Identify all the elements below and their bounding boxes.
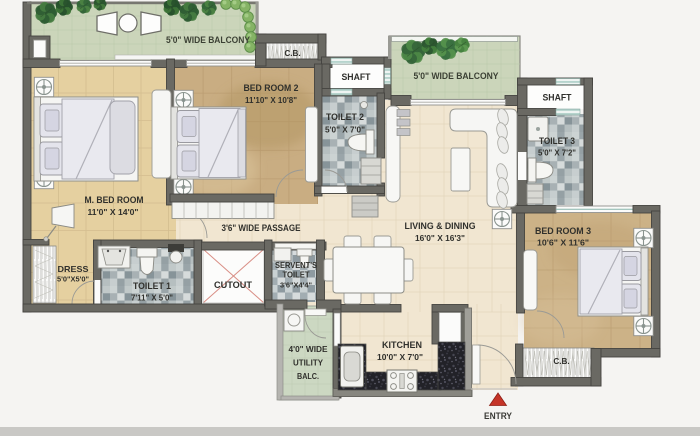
svg-text:CUTOUT: CUTOUT	[214, 280, 252, 290]
svg-text:C.B.: C.B.	[284, 49, 300, 58]
svg-text:BED ROOM 3: BED ROOM 3	[535, 225, 591, 236]
svg-text:TOILET 3: TOILET 3	[539, 136, 575, 146]
svg-text:16'0" X 16'3": 16'0" X 16'3"	[415, 233, 465, 243]
svg-text:7'11" X 5'0": 7'11" X 5'0"	[131, 294, 173, 303]
svg-text:SHAFT: SHAFT	[342, 72, 371, 83]
svg-text:5'0" WIDE BALCONY: 5'0" WIDE BALCONY	[414, 71, 500, 82]
svg-text:LIVING & DINING: LIVING & DINING	[405, 220, 476, 231]
svg-text:BALC.: BALC.	[297, 372, 319, 381]
svg-text:SERVENT'S: SERVENT'S	[275, 261, 317, 270]
svg-text:5'0" X 7'2": 5'0" X 7'2"	[538, 149, 576, 158]
svg-text:DRESS: DRESS	[58, 264, 89, 274]
svg-text:BED ROOM 2: BED ROOM 2	[244, 82, 299, 93]
svg-text:3'6"X4'4": 3'6"X4'4"	[280, 281, 312, 290]
svg-text:5'0" WIDE BALCONY: 5'0" WIDE BALCONY	[166, 35, 251, 46]
svg-text:M. BED ROOM: M. BED ROOM	[85, 194, 144, 205]
svg-text:10'0" X 7'0": 10'0" X 7'0"	[377, 352, 423, 362]
svg-text:10'6" X 11'6": 10'6" X 11'6"	[537, 238, 589, 248]
svg-text:11'0" X 14'0": 11'0" X 14'0"	[88, 207, 139, 217]
svg-text:SHAFT: SHAFT	[543, 93, 572, 104]
svg-text:TOILET 2: TOILET 2	[326, 112, 364, 122]
svg-text:KITCHEN: KITCHEN	[382, 340, 422, 350]
svg-text:5'0" X 7'0": 5'0" X 7'0"	[325, 126, 365, 135]
svg-text:TOILET: TOILET	[283, 271, 310, 280]
svg-text:5'0"X5'0": 5'0"X5'0"	[57, 275, 89, 284]
svg-text:ENTRY: ENTRY	[484, 410, 513, 421]
svg-text:UTILITY: UTILITY	[293, 359, 324, 368]
svg-text:C.B.: C.B.	[553, 357, 569, 366]
svg-text:3'6" WIDE PASSAGE: 3'6" WIDE PASSAGE	[222, 223, 301, 234]
svg-text:4'0" WIDE: 4'0" WIDE	[289, 345, 329, 354]
svg-text:TOILET 1: TOILET 1	[133, 281, 171, 291]
svg-text:11'10" X 10'8": 11'10" X 10'8"	[245, 95, 297, 105]
